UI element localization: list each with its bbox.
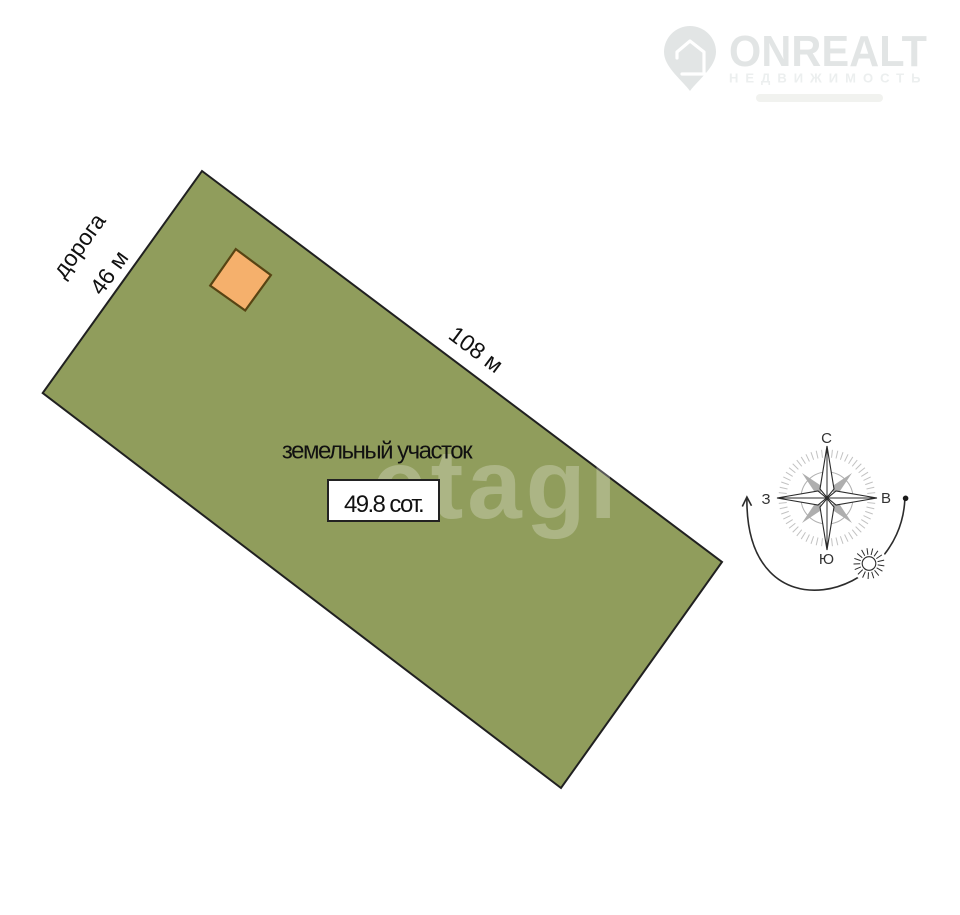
svg-text:49.8 сот.: 49.8 сот.	[344, 491, 423, 518]
svg-text:Ю: Ю	[819, 551, 834, 568]
svg-text:З: З	[761, 491, 770, 508]
svg-text:НЕДВИЖИМОСТЬ: НЕДВИЖИМОСТЬ	[729, 71, 927, 86]
svg-text:ONREALT: ONREALT	[729, 27, 927, 76]
svg-text:С: С	[821, 430, 832, 447]
svg-text:В: В	[881, 490, 891, 507]
svg-text:земельный участок: земельный участок	[282, 438, 473, 465]
